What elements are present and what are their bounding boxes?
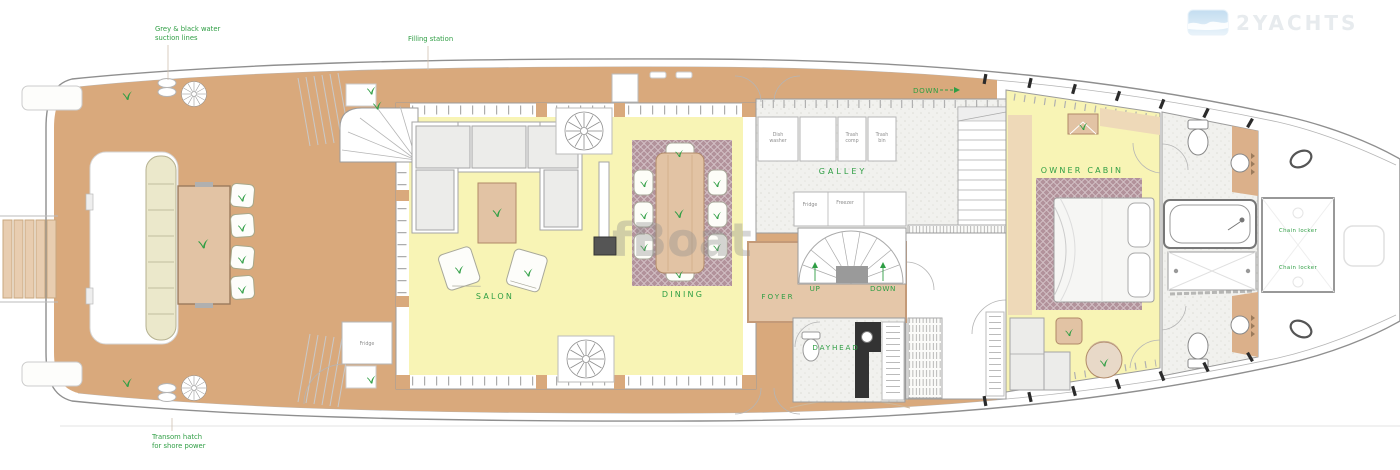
dresser (1068, 114, 1098, 134)
brand-logo: 2YACHTS (1188, 10, 1358, 35)
bathtub (1164, 200, 1256, 248)
yacht-deck-plan: Fridge SALON DINING Dish washer Trash co (0, 0, 1400, 470)
toilet (1188, 129, 1208, 155)
coffee-table (478, 183, 516, 243)
faucet-marks (1251, 153, 1255, 175)
fan-rose-icon (567, 340, 605, 378)
foyer-up-label: UP (810, 284, 821, 293)
trash-bin-label-2: bin (878, 138, 885, 144)
dishwasher-label-2: washer (769, 138, 786, 144)
wardrobe (908, 318, 942, 398)
dayhead-label: DAYHEAD (812, 343, 859, 352)
transom-note-2: for shore power (152, 442, 206, 450)
toilet-tank (1188, 120, 1208, 129)
table-end-cap (195, 182, 213, 187)
pillow (1128, 253, 1150, 297)
foyer-label: FOYER (761, 292, 794, 301)
faucet-marks (1251, 315, 1255, 337)
salon-corner-stair (340, 106, 418, 162)
chain-locker-lower-label: Chain locker (1279, 265, 1318, 271)
filling-station-note: Filling station (408, 35, 453, 43)
owner-bathroom (1162, 112, 1258, 376)
platform-step (86, 194, 93, 210)
dayhead-sink (862, 332, 873, 343)
salon-label: SALON (476, 292, 514, 301)
bed (1054, 198, 1154, 302)
suction-note-2: suction lines (155, 34, 198, 42)
partition-cabinet (599, 162, 609, 237)
cabin-side-table (1056, 318, 1082, 344)
toilet-tank (802, 332, 820, 339)
passerelle (0, 216, 58, 302)
fridge-label: Fridge (803, 202, 818, 208)
trash-bin-label-1: Trash (875, 132, 889, 138)
shower-head (1246, 269, 1250, 273)
cabin-walkway (1008, 115, 1032, 315)
toilet (1188, 333, 1208, 359)
filling-station-locker (612, 74, 638, 102)
fan-rose-icon (565, 112, 603, 150)
transom-note-1: Transom hatch (151, 433, 202, 441)
dining-label: DINING (662, 290, 704, 299)
chain-locker-upper-label: Chain locker (1279, 228, 1318, 234)
owner-cabin-label: OWNER CABIN (1041, 166, 1123, 175)
pillow (1128, 203, 1150, 247)
owner-cabin: OWNER CABIN (1006, 90, 1160, 392)
dayhead: DAYHEAD (793, 318, 905, 402)
foyer-down-label: DOWN (870, 284, 896, 293)
foyer: FOYER UP DOWN (748, 228, 906, 322)
salon-fridge-label: Fridge (360, 341, 375, 347)
table-end-cap (195, 303, 213, 308)
galley-down-label: DOWN (913, 86, 939, 95)
galley-label: GALLEY (819, 167, 868, 176)
suction-note-1: Grey & black water (155, 25, 221, 33)
shower-head (1174, 269, 1178, 273)
trash-comp-label-1: Trash (845, 132, 859, 138)
foyer-stair-fan (798, 228, 906, 284)
dayhead-counter (855, 352, 869, 398)
aft-bench (146, 156, 176, 340)
sink (1231, 316, 1249, 334)
dishwasher-label-1: Dish (773, 132, 784, 138)
shelf-unit (986, 312, 1004, 396)
sink (1231, 154, 1249, 172)
freezer-label: Freezer (836, 200, 854, 206)
galley-counter (794, 192, 906, 226)
tub-shower-head (1240, 218, 1245, 223)
trash-comp-label-2: comp (845, 139, 858, 144)
stair-landing (836, 266, 868, 283)
deck-hatch (1344, 226, 1384, 266)
logo-brand-text: 2YACHTS (1236, 11, 1358, 35)
logo-flag-icon (1188, 10, 1228, 35)
dayhead-shelves (882, 322, 904, 400)
corridor (906, 233, 1006, 399)
platform-step (86, 288, 93, 304)
vanity-chair (1086, 342, 1122, 378)
site-watermark: fBoat (612, 213, 752, 267)
